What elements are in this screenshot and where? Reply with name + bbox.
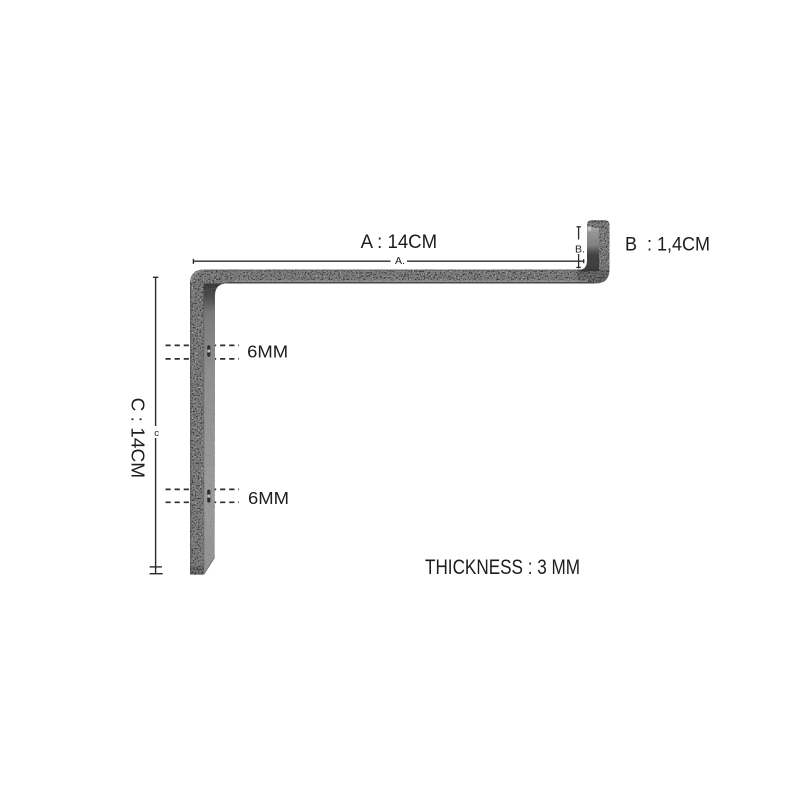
svg-text:A : 14CM: A : 14CM — [361, 232, 438, 253]
svg-text:B.: B. — [575, 244, 585, 256]
svg-text:B : 1,4CM: B : 1,4CM — [625, 234, 710, 256]
svg-text:c: c — [154, 428, 159, 439]
svg-text:A.: A. — [395, 255, 405, 267]
svg-text:6MM: 6MM — [247, 341, 288, 361]
svg-text:C : 14CM: C : 14CM — [128, 398, 149, 479]
svg-text:6MM: 6MM — [248, 488, 289, 508]
svg-text:THICKNESS : 3 MM: THICKNESS : 3 MM — [425, 556, 580, 579]
